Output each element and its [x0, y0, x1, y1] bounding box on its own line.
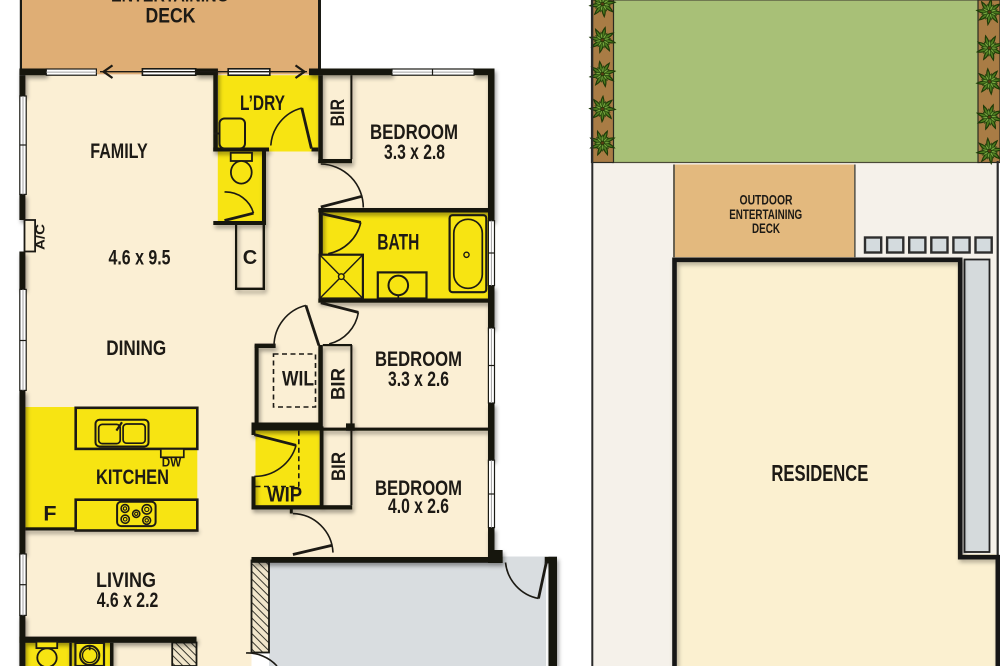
- svg-text:DECK: DECK: [146, 4, 196, 28]
- svg-text:F: F: [43, 502, 56, 526]
- svg-text:DW: DW: [162, 455, 182, 470]
- svg-text:3.3 x 2.8: 3.3 x 2.8: [384, 140, 445, 164]
- svg-text:C: C: [243, 247, 257, 269]
- svg-text:RESIDENCE: RESIDENCE: [771, 460, 868, 486]
- svg-text:4.6 x 9.5: 4.6 x 9.5: [109, 246, 171, 270]
- svg-text:KITCHEN: KITCHEN: [96, 465, 169, 489]
- svg-text:L’DRY: L’DRY: [240, 91, 285, 115]
- svg-text:BIR: BIR: [328, 99, 349, 127]
- svg-text:3.3 x 2.6: 3.3 x 2.6: [388, 367, 449, 391]
- svg-text:BIR: BIR: [329, 452, 350, 481]
- svg-text:ENTERTAINING: ENTERTAINING: [729, 207, 802, 222]
- svg-text:WIL: WIL: [282, 367, 314, 391]
- svg-text:DINING: DINING: [106, 336, 166, 360]
- svg-text:WIP: WIP: [267, 483, 302, 507]
- svg-text:DECK: DECK: [752, 221, 780, 236]
- svg-text:BATH: BATH: [377, 230, 419, 255]
- svg-text:OUTDOOR: OUTDOOR: [740, 193, 793, 208]
- svg-text:BIR: BIR: [329, 368, 350, 400]
- svg-text:4.0 x 2.6: 4.0 x 2.6: [388, 494, 449, 518]
- svg-text:FAMILY: FAMILY: [90, 139, 148, 163]
- svg-text:A/C: A/C: [34, 224, 48, 250]
- svg-text:4.6 x 2.2: 4.6 x 2.2: [97, 588, 159, 612]
